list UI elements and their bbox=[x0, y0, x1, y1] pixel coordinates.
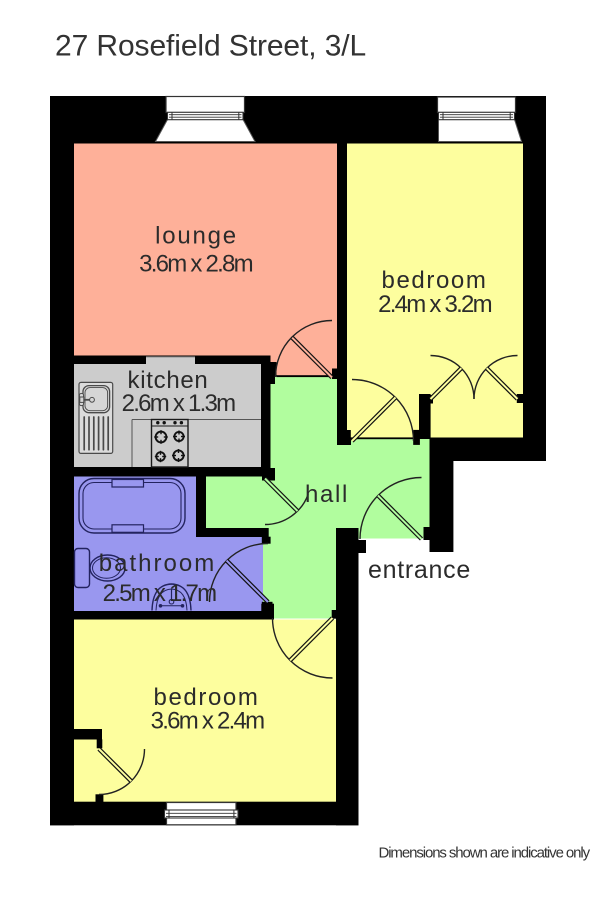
svg-text:Dimensions shown are indicativ: Dimensions shown are indicative only bbox=[378, 844, 590, 861]
svg-text:bedroom: bedroom bbox=[382, 267, 488, 294]
svg-text:bathroom: bathroom bbox=[99, 550, 216, 577]
svg-text:2.6m x 1.3m: 2.6m x 1.3m bbox=[122, 390, 236, 417]
svg-text:2.4m x 3.2m: 2.4m x 3.2m bbox=[378, 291, 492, 318]
svg-text:27 Rosefield Street, 3/L: 27 Rosefield Street, 3/L bbox=[55, 29, 366, 62]
svg-text:3.6m x 2.8m: 3.6m x 2.8m bbox=[139, 251, 253, 278]
svg-text:entrance: entrance bbox=[368, 556, 471, 584]
svg-text:lounge: lounge bbox=[155, 223, 238, 250]
svg-text:3.6m x 2.4m: 3.6m x 2.4m bbox=[151, 708, 265, 735]
svg-text:2.5m x 1.7m: 2.5m x 1.7m bbox=[103, 580, 217, 607]
svg-text:hall: hall bbox=[305, 481, 349, 508]
